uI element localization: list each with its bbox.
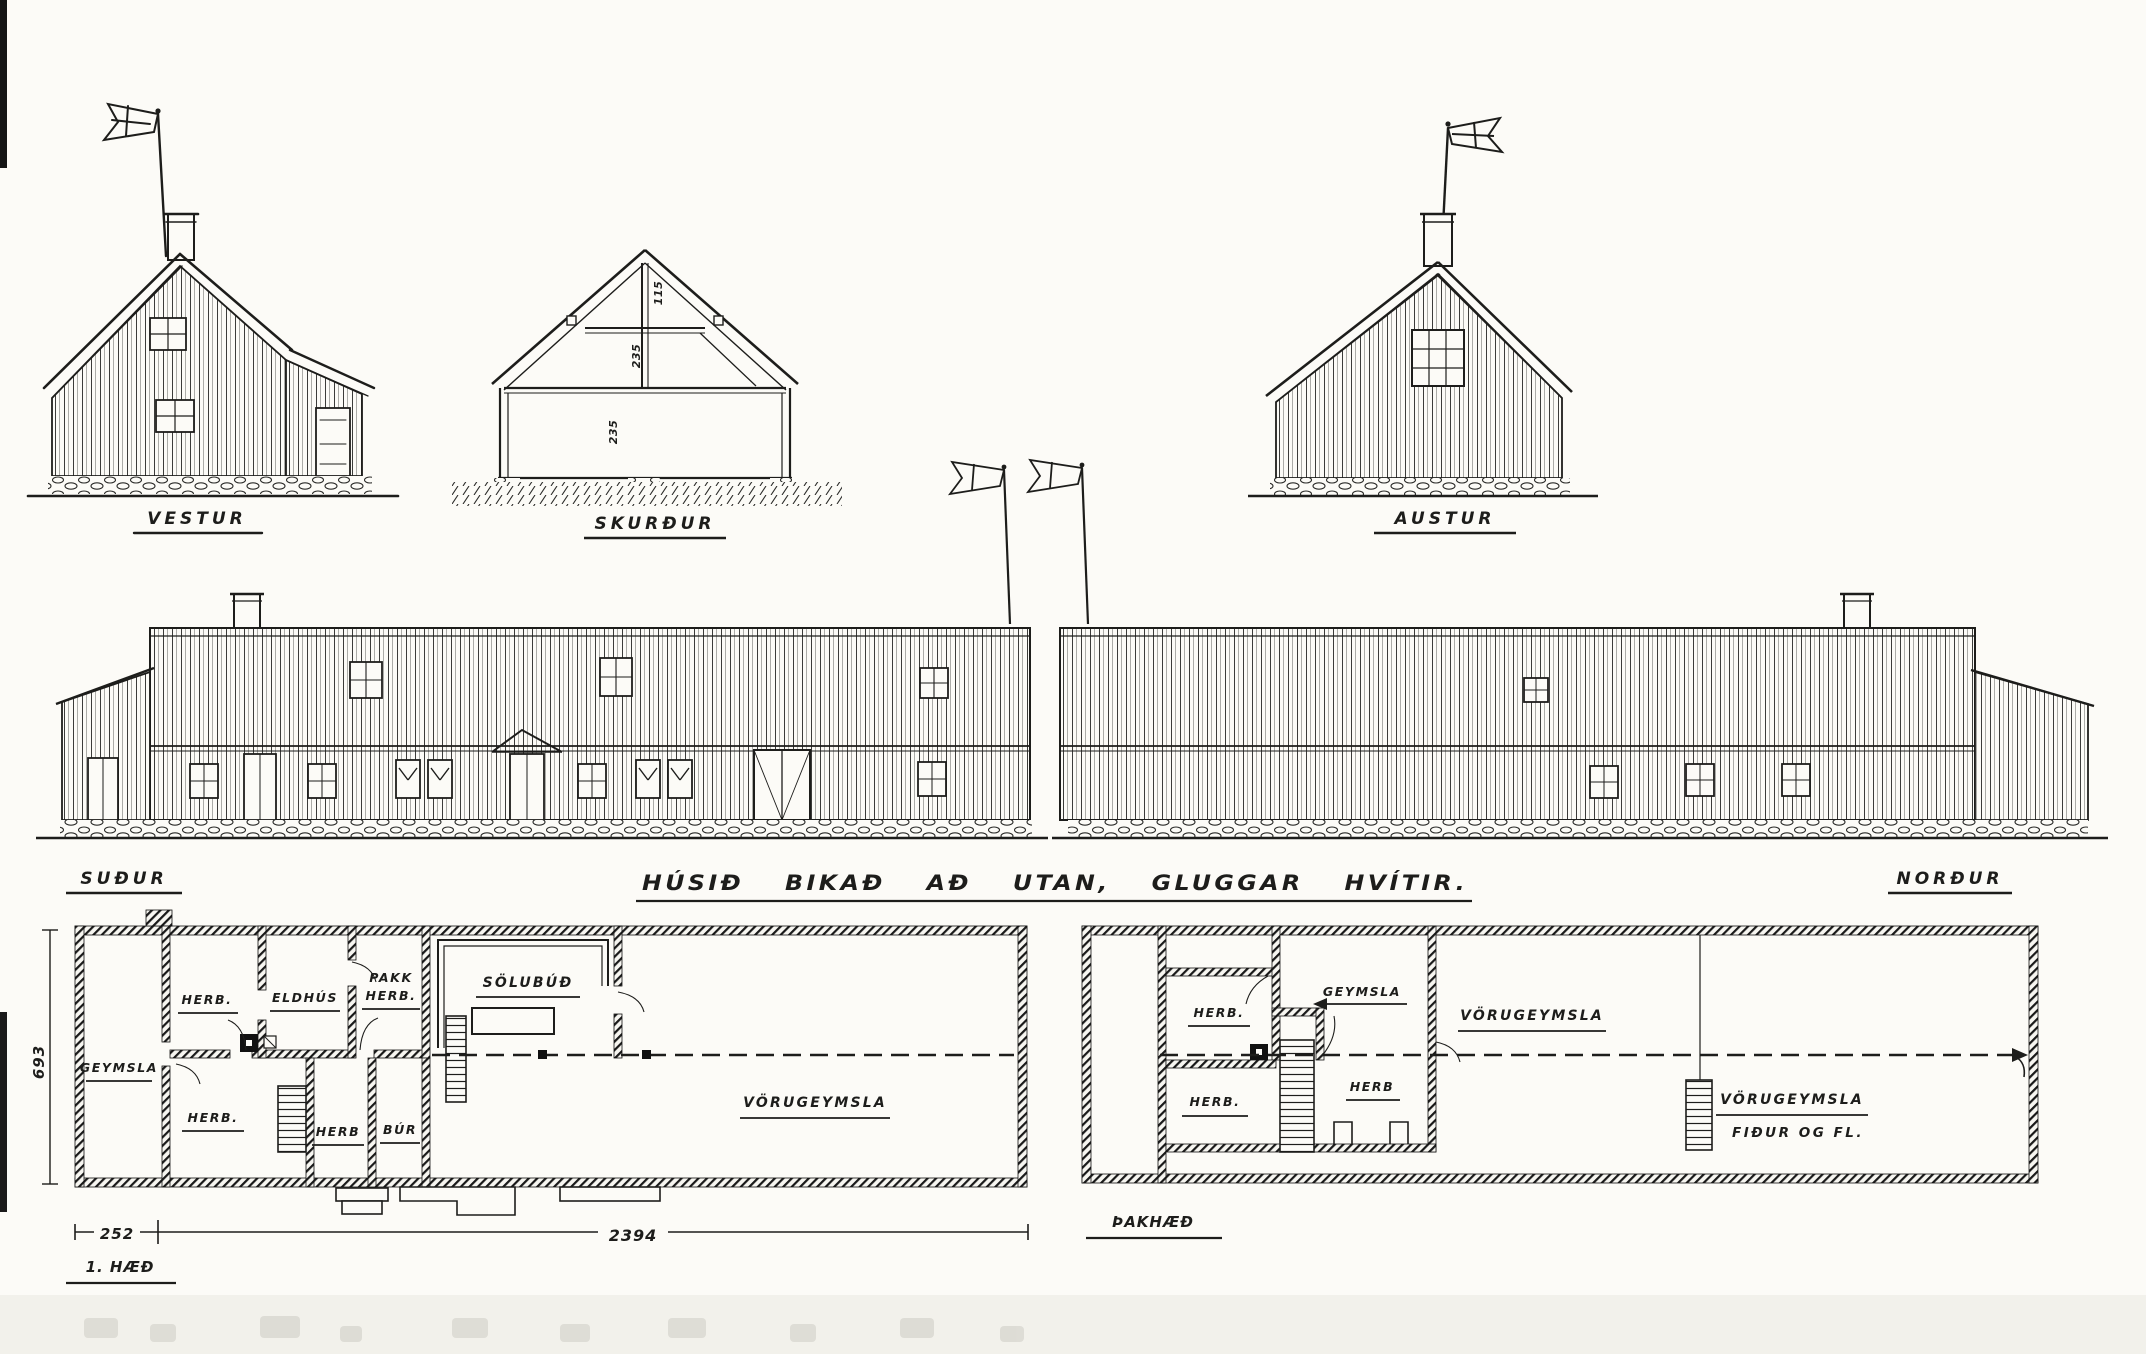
cross-section: 115 235 235 SKURÐUR	[452, 250, 842, 538]
dim-wall: 235	[607, 420, 620, 444]
leanto-door	[316, 408, 350, 476]
ground-floor-plan: GEYMSLA HERB. ELDHÚS PAKK HERB. SÖLUBÚÐ …	[30, 910, 1028, 1283]
chimney	[1420, 214, 1456, 266]
room-herb-n: HERB.	[1194, 1005, 1245, 1020]
right-leanto	[1971, 670, 2094, 820]
room-herb-s: HERB	[316, 1124, 361, 1139]
room-geymsla: GEYMSLA	[80, 1060, 158, 1075]
chimney	[1840, 594, 1874, 628]
chimney	[230, 594, 264, 628]
north-elevation: NORÐUR	[1028, 460, 2108, 893]
room-eldhus: ELDHÚS	[272, 990, 338, 1005]
room-herb-s-attic: HERB	[1350, 1079, 1395, 1094]
room-pakkherb-2: HERB.	[366, 988, 417, 1003]
caption-block: HÚSIÐ BIKAÐ AÐ UTAN, GLUGGAR HVÍTIR.	[636, 870, 1472, 901]
roof-truss	[492, 250, 798, 390]
dim-annex: 252	[100, 1225, 134, 1243]
room-bur: BÚR	[383, 1122, 417, 1137]
gable-window-lower	[156, 400, 194, 432]
gable-window-upper	[150, 318, 186, 350]
dim-loft: 235	[630, 344, 643, 368]
loft-door	[1412, 330, 1464, 386]
room-vorugeymsla: VÖRUGEYMSLA	[743, 1093, 887, 1111]
room-vorugeymsla-n: VÖRUGEYMSLA	[1460, 1006, 1604, 1024]
center-line	[432, 1050, 1014, 1059]
attic-ladder	[1686, 935, 1712, 1150]
foundation	[48, 476, 372, 494]
interior-walls	[162, 926, 622, 1187]
caption-text: HÚSIÐ BIKAÐ AÐ UTAN, GLUGGAR HVÍTIR.	[642, 870, 1468, 895]
geymsla-arrow	[1313, 998, 1407, 1010]
foundation	[1068, 820, 2088, 838]
architectural-drawing-canvas: VESTUR	[0, 0, 2146, 1354]
drawing-sheet: VESTUR	[0, 0, 2146, 1354]
facade	[1060, 628, 1975, 820]
east-label: AUSTUR	[1393, 509, 1496, 529]
room-fidur: FIÐUR OG FL.	[1732, 1125, 1864, 1141]
west-label: VESTUR	[147, 509, 247, 529]
room-vorugeymsla-s: VÖRUGEYMSLA	[1720, 1090, 1864, 1108]
attic-stove	[1250, 1044, 1268, 1060]
dim-ridge: 115	[652, 281, 665, 305]
foundation	[60, 820, 1032, 838]
exterior-steps	[336, 1187, 660, 1215]
room-herb-sw-attic: HERB.	[1190, 1094, 1241, 1109]
chimney	[164, 214, 198, 260]
east-elevation: AUSTUR	[1248, 118, 1598, 533]
warehouse-ladder	[446, 1016, 466, 1102]
west-elevation: VESTUR	[28, 104, 398, 533]
room-herb-sw: HERB.	[188, 1110, 239, 1125]
south-label: SUÐUR	[80, 869, 167, 889]
section-walls	[498, 388, 792, 478]
ground-floor-label: 1. HÆÐ	[86, 1258, 155, 1276]
section-dimensions: 115 235 235	[607, 281, 665, 444]
section-foundation	[452, 478, 842, 506]
attic-floor-label: ÞAKHÆÐ	[1112, 1213, 1194, 1231]
gable-face	[52, 266, 286, 476]
flag	[1028, 460, 1088, 624]
room-pakkherb-1: PAKK	[369, 970, 412, 985]
room-geymsla-attic: GEYMSLA	[1323, 984, 1401, 999]
stairs-ground	[278, 1086, 306, 1152]
flag	[104, 104, 166, 256]
outer-walls	[75, 910, 1027, 1187]
room-herb-nw: HERB.	[182, 992, 233, 1007]
section-label: SKURÐUR	[595, 514, 716, 534]
foundation	[1270, 478, 1570, 496]
attic-floor-plan: HERB. GEYMSLA VÖRUGEYMSLA HERB. HERB VÖR…	[1082, 926, 2038, 1238]
bench-symbols	[1334, 1122, 1408, 1144]
stairs-attic	[1280, 1040, 1314, 1152]
room-solubud: SÖLUBÚÐ	[483, 973, 574, 991]
dim-depth: 693	[30, 1045, 48, 1079]
north-label: NORÐUR	[1896, 869, 2003, 889]
flag	[950, 462, 1010, 624]
dim-length: 2394	[609, 1226, 658, 1245]
